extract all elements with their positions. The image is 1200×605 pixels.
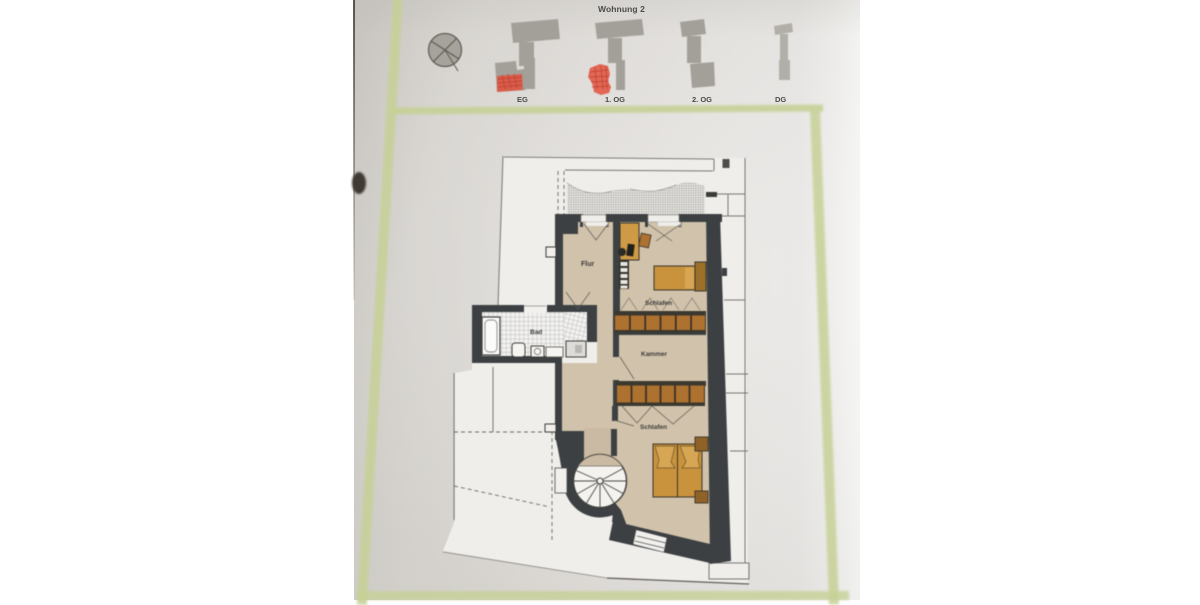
svg-text:Bad: Bad bbox=[530, 329, 542, 336]
svg-text:Schlafen: Schlafen bbox=[640, 424, 667, 431]
svg-text:Schlafen: Schlafen bbox=[645, 300, 672, 307]
svg-text:Flur: Flur bbox=[581, 261, 594, 268]
svg-text:Kammer: Kammer bbox=[641, 351, 667, 358]
